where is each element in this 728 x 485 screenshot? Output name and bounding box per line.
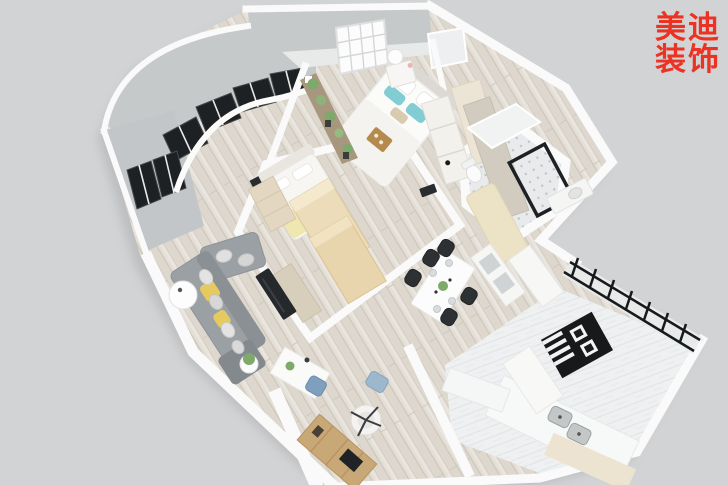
floorplan-screenshot: 美迪 装饰	[0, 0, 728, 485]
desk-plant-icon	[286, 362, 295, 371]
armchair	[351, 405, 381, 436]
desk-item	[305, 358, 310, 363]
floorplan-render: 美迪 装饰	[0, 0, 728, 485]
brand-logo: 美迪 装饰	[655, 10, 721, 78]
brand-logo-line1: 美迪	[655, 10, 721, 46]
round-side-table	[169, 281, 197, 309]
back-wall-window	[336, 20, 388, 74]
brand-logo-line2: 装饰	[655, 42, 721, 78]
